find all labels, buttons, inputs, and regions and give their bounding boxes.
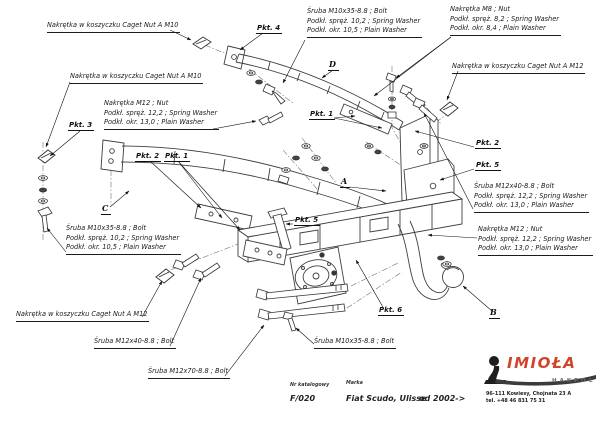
model-value: Fiat Scudo, Ulisse (346, 394, 426, 403)
callout-cage-nut-m12-right: Nakrętka w koszyczku Caget Nut A M12 (452, 62, 585, 74)
callout-nut-m8: Nakrętka M8 ; Nut Podkł. spręż. 8,2 ; Sp… (450, 5, 561, 36)
link-plate (195, 204, 252, 230)
callout-cage-nut-m10-left: Nakrętka w koszyczku Caget Nut A M10 (70, 72, 203, 84)
point-label-5-mid: Pkt. 5 (294, 216, 320, 226)
point-label-6: Pkt. 6 (378, 306, 404, 316)
diagonal-strap (340, 104, 392, 134)
point-label-5-right: Pkt. 5 (475, 161, 501, 171)
part-letter-d: D (328, 60, 339, 71)
part-letter-a: A (340, 177, 350, 188)
catalog-number-label: Nr katalogowy (290, 383, 329, 389)
fasteners (38, 71, 451, 331)
callout-nut-m12-right: Nakrętka M12 ; Nut Podkł. spręż. 12,2 ; … (478, 225, 593, 256)
callout-bolt-m10x35-top: Śruba M10x35-8.8 ; Bolt Podkł. spręż. 10… (307, 7, 422, 38)
callout-cage-nut-m12-bottom: Nakrętka w koszyczku Caget Nut A M12 (16, 310, 149, 322)
callout-cage-nut-m10-top: Nakrętka w koszyczku Caget Nut A M10 (47, 21, 180, 33)
point-label-2-left: Pkt. 2 (135, 152, 161, 162)
logo-sub-brand-text: HAKPOL (552, 378, 595, 384)
point-label-1-left: Pkt. 1 (164, 152, 190, 162)
callout-nut-m12-left: Nakrętka M12 ; Nut Podkł. spręż. 12,2 ; … (104, 99, 219, 130)
logo-address-line1: 96-111 Kowiesy, Chojnata 23 A (486, 391, 571, 398)
callout-bolt-m12x40-right: Śruba M12x40-8.8 ; Bolt Podkł. spręż. 12… (474, 182, 589, 213)
point-label-3: Pkt. 3 (68, 121, 94, 131)
logo-address-line2: tel. +48 46 831 75 31 (486, 398, 545, 405)
part-letter-b: B (489, 308, 500, 319)
point-label-4: Pkt. 4 (256, 24, 282, 34)
catalog-number-value: F/020 (290, 394, 315, 403)
towbar-assembly-sheet: Nakrętka w koszyczku Caget Nut A M10 Nak… (0, 0, 600, 425)
point-label-2-right: Pkt. 2 (475, 139, 501, 149)
point-label-1-mid: Pkt. 1 (309, 110, 335, 120)
year-range-value: od 2002-> (419, 394, 465, 403)
callout-bolt-m12x70-bottom: Śruba M12x70-8.8 ; Bolt (148, 367, 230, 379)
callout-bolt-m10x35-bottom: Śruba M10x35-8.8 ; Bolt (314, 337, 396, 349)
logo-brand-text: IMIOŁA (507, 356, 576, 371)
callout-bolt-m12x40-bottom: Śruba M12x40-8.8 ; Bolt (94, 337, 176, 349)
part-letter-c: C (101, 204, 111, 215)
brand-label: Marka (346, 381, 363, 387)
callout-bolt-m10x35-left: Śruba M10x35-8.8 ; Bolt Podkł. spręż. 10… (66, 224, 181, 255)
